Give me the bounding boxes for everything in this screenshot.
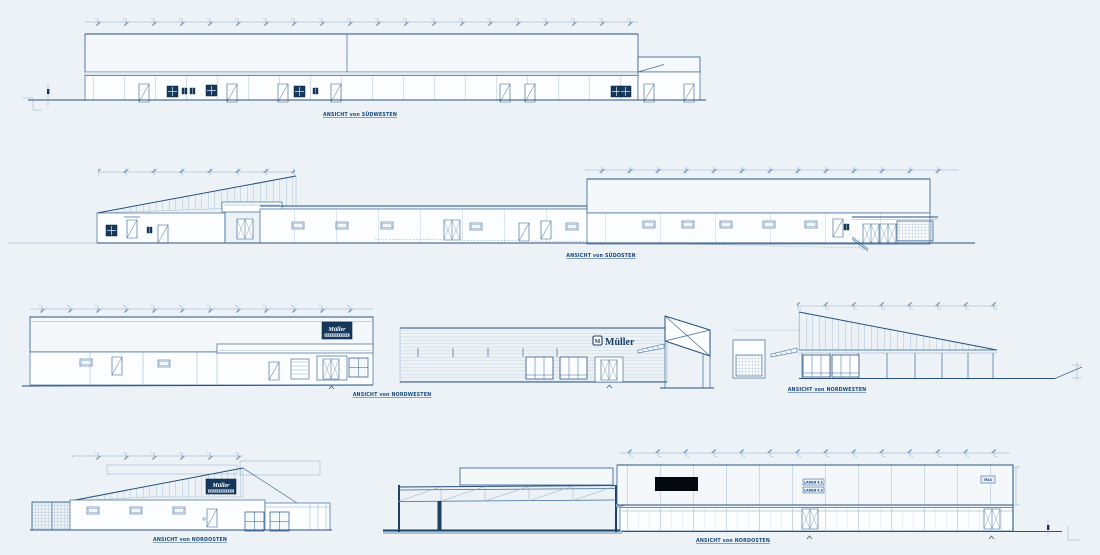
right-building (587, 179, 938, 251)
laden-elevation: LADEN 4.1 LADEN 4.2 M24 (617, 465, 1020, 539)
entry-arrow (989, 536, 994, 539)
window (566, 223, 578, 230)
door (112, 357, 122, 375)
laden-label-2: LADEN 4.2 (803, 487, 824, 493)
window (292, 222, 304, 229)
window (270, 512, 289, 531)
elevation-suedosten: ANSICHT von SÜDOSTEN (8, 167, 975, 260)
window (245, 512, 264, 531)
entry-door (601, 360, 617, 380)
grid-window (349, 358, 368, 377)
annex (638, 57, 700, 102)
dimension-line (30, 306, 373, 313)
window (158, 360, 170, 367)
unit-label: M24 (981, 476, 995, 483)
dimension-line (85, 19, 638, 26)
level-marker (47, 84, 49, 106)
dimension-line (797, 303, 997, 310)
drawing-sheet: ANSICHT von SÜDWESTEN (0, 0, 1100, 555)
entry-arrow (807, 536, 812, 539)
small-window (844, 224, 849, 230)
entry-door (323, 359, 339, 379)
dark-window (167, 86, 178, 97)
window (763, 221, 775, 228)
door (127, 220, 137, 238)
door (207, 509, 217, 527)
door (278, 84, 288, 102)
mesh-window (736, 355, 762, 376)
door (500, 84, 510, 102)
svg-text:M24: M24 (984, 478, 992, 482)
trellis-screen (32, 502, 73, 530)
side-annex (733, 330, 799, 378)
mueller-script: Müller (327, 327, 346, 333)
double-door (237, 219, 253, 239)
small-window (182, 88, 187, 94)
elevation-nordosten-laeden: LADEN 4.1 LADEN 4.2 M24 ANSICHT von NORD… (383, 450, 1080, 545)
ground-slope (1055, 367, 1082, 379)
entry-door (984, 509, 1000, 529)
small-window (147, 227, 152, 233)
view-label: ANSICHT von NORDOSTEN (153, 537, 227, 543)
door (331, 84, 341, 102)
mueller-facade-sign: Müller (206, 479, 236, 494)
building-section (383, 468, 642, 533)
storefront-glass (526, 357, 553, 379)
door (158, 225, 168, 243)
elevation-nordwesten-mueller: Müller M Müller (22, 306, 714, 399)
mesh-screen (897, 221, 933, 241)
entry-arrow (607, 385, 612, 388)
mueller-facade-sign: Müller (322, 322, 352, 339)
interior-column (439, 501, 441, 531)
door (541, 221, 551, 239)
window (682, 221, 694, 228)
level-marker (1072, 362, 1082, 381)
dark-window (206, 85, 217, 96)
double-door (444, 220, 460, 240)
logo-wordmark: Müller (605, 337, 635, 348)
view-label: ANSICHT von NORDWESTEN (353, 392, 432, 398)
door (525, 84, 535, 102)
dark-window (620, 86, 631, 97)
window (470, 223, 482, 230)
door (880, 224, 896, 244)
dimension-line (72, 453, 243, 460)
door (644, 84, 654, 102)
view-label: ANSICHT von NORDWESTEN (788, 387, 867, 393)
view-label: ANSICHT von SÜDOSTEN (566, 252, 635, 259)
rear-block (240, 461, 320, 475)
dimension-line (620, 450, 1010, 457)
entry-arrow (329, 386, 334, 389)
storefront-glass (560, 357, 587, 379)
wall (70, 500, 265, 530)
svg-text:LADEN 4.1: LADEN 4.1 (804, 481, 823, 485)
door (269, 362, 279, 380)
black-sign-panel (655, 477, 698, 491)
door (833, 219, 843, 237)
window (336, 222, 348, 229)
ground-step (1068, 526, 1080, 540)
rear-wall-band (460, 468, 613, 485)
storefront-glass (803, 355, 830, 377)
dark-window (294, 86, 305, 97)
roof-truss (398, 486, 616, 502)
mueller-script: Müller (211, 483, 230, 489)
dimension-line (98, 167, 958, 176)
window (130, 507, 142, 514)
view-label: ANSICHT von SÜDWESTEN (323, 111, 397, 118)
striped-hall: M Müller (400, 328, 667, 388)
window (643, 221, 655, 228)
roof-fascia (85, 34, 638, 72)
svg-text:LADEN 4.2: LADEN 4.2 (804, 489, 823, 493)
eave-band (85, 72, 638, 76)
door (863, 224, 879, 244)
window (173, 507, 185, 514)
elevation-nordwesten-pultdach: ANSICHT von NORDWESTEN (733, 303, 1082, 394)
view-label: ANSICHT von NORDOSTEN (696, 538, 770, 544)
window (720, 221, 732, 228)
height-dim (1013, 467, 1020, 505)
awning (771, 348, 797, 357)
window (381, 222, 393, 229)
laden-label-1: LADEN 4.1 (803, 479, 824, 485)
door (227, 84, 237, 102)
columns (802, 353, 993, 378)
door (684, 84, 694, 102)
level-marker (1047, 520, 1049, 535)
window (805, 221, 817, 228)
window (80, 359, 92, 366)
logo-emblem: M (595, 339, 601, 345)
door (519, 223, 529, 241)
storefront-glass (832, 355, 859, 377)
window (87, 507, 99, 514)
elevation-nordosten-mueller: Müller ANSICHT von NORDOSTEN (30, 453, 332, 544)
elevation-drawing: ANSICHT von SÜDWESTEN (0, 0, 1100, 555)
door (139, 84, 149, 102)
elevation-suedwesten: ANSICHT von SÜDWESTEN (22, 19, 706, 119)
small-window (313, 88, 318, 94)
small-window (190, 88, 195, 94)
entry-door (802, 509, 818, 529)
dark-window (106, 225, 117, 236)
